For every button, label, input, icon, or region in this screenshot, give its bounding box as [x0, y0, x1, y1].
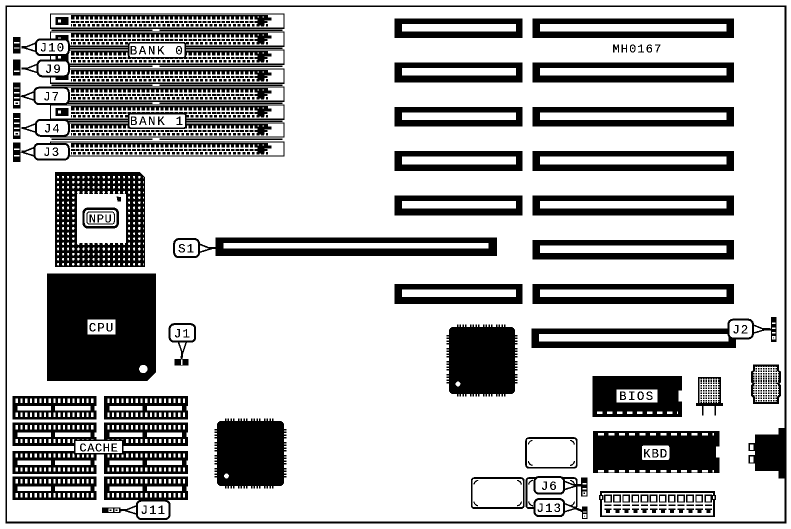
svg-text:J10: J10 [40, 42, 66, 56]
svg-text:BIOS: BIOS [619, 390, 655, 404]
svg-text:CPU: CPU [89, 322, 115, 336]
svg-text:J7: J7 [43, 90, 60, 104]
svg-text:J1: J1 [174, 327, 191, 341]
svg-text:KBD: KBD [643, 447, 668, 461]
svg-text:S1: S1 [178, 243, 195, 257]
svg-text:J13: J13 [537, 502, 563, 516]
svg-text:J6: J6 [541, 480, 558, 494]
svg-text:J2: J2 [732, 323, 749, 337]
svg-text:BANK 0: BANK 0 [130, 45, 185, 59]
svg-text:CACHE: CACHE [79, 441, 118, 455]
svg-text:J3: J3 [43, 146, 60, 160]
svg-text:BANK 1: BANK 1 [130, 115, 185, 129]
svg-text:MH0167: MH0167 [613, 43, 663, 57]
svg-text:J4: J4 [44, 122, 61, 136]
svg-text:NPU: NPU [89, 212, 112, 226]
svg-text:J11: J11 [140, 504, 166, 518]
svg-text:J9: J9 [45, 63, 62, 77]
